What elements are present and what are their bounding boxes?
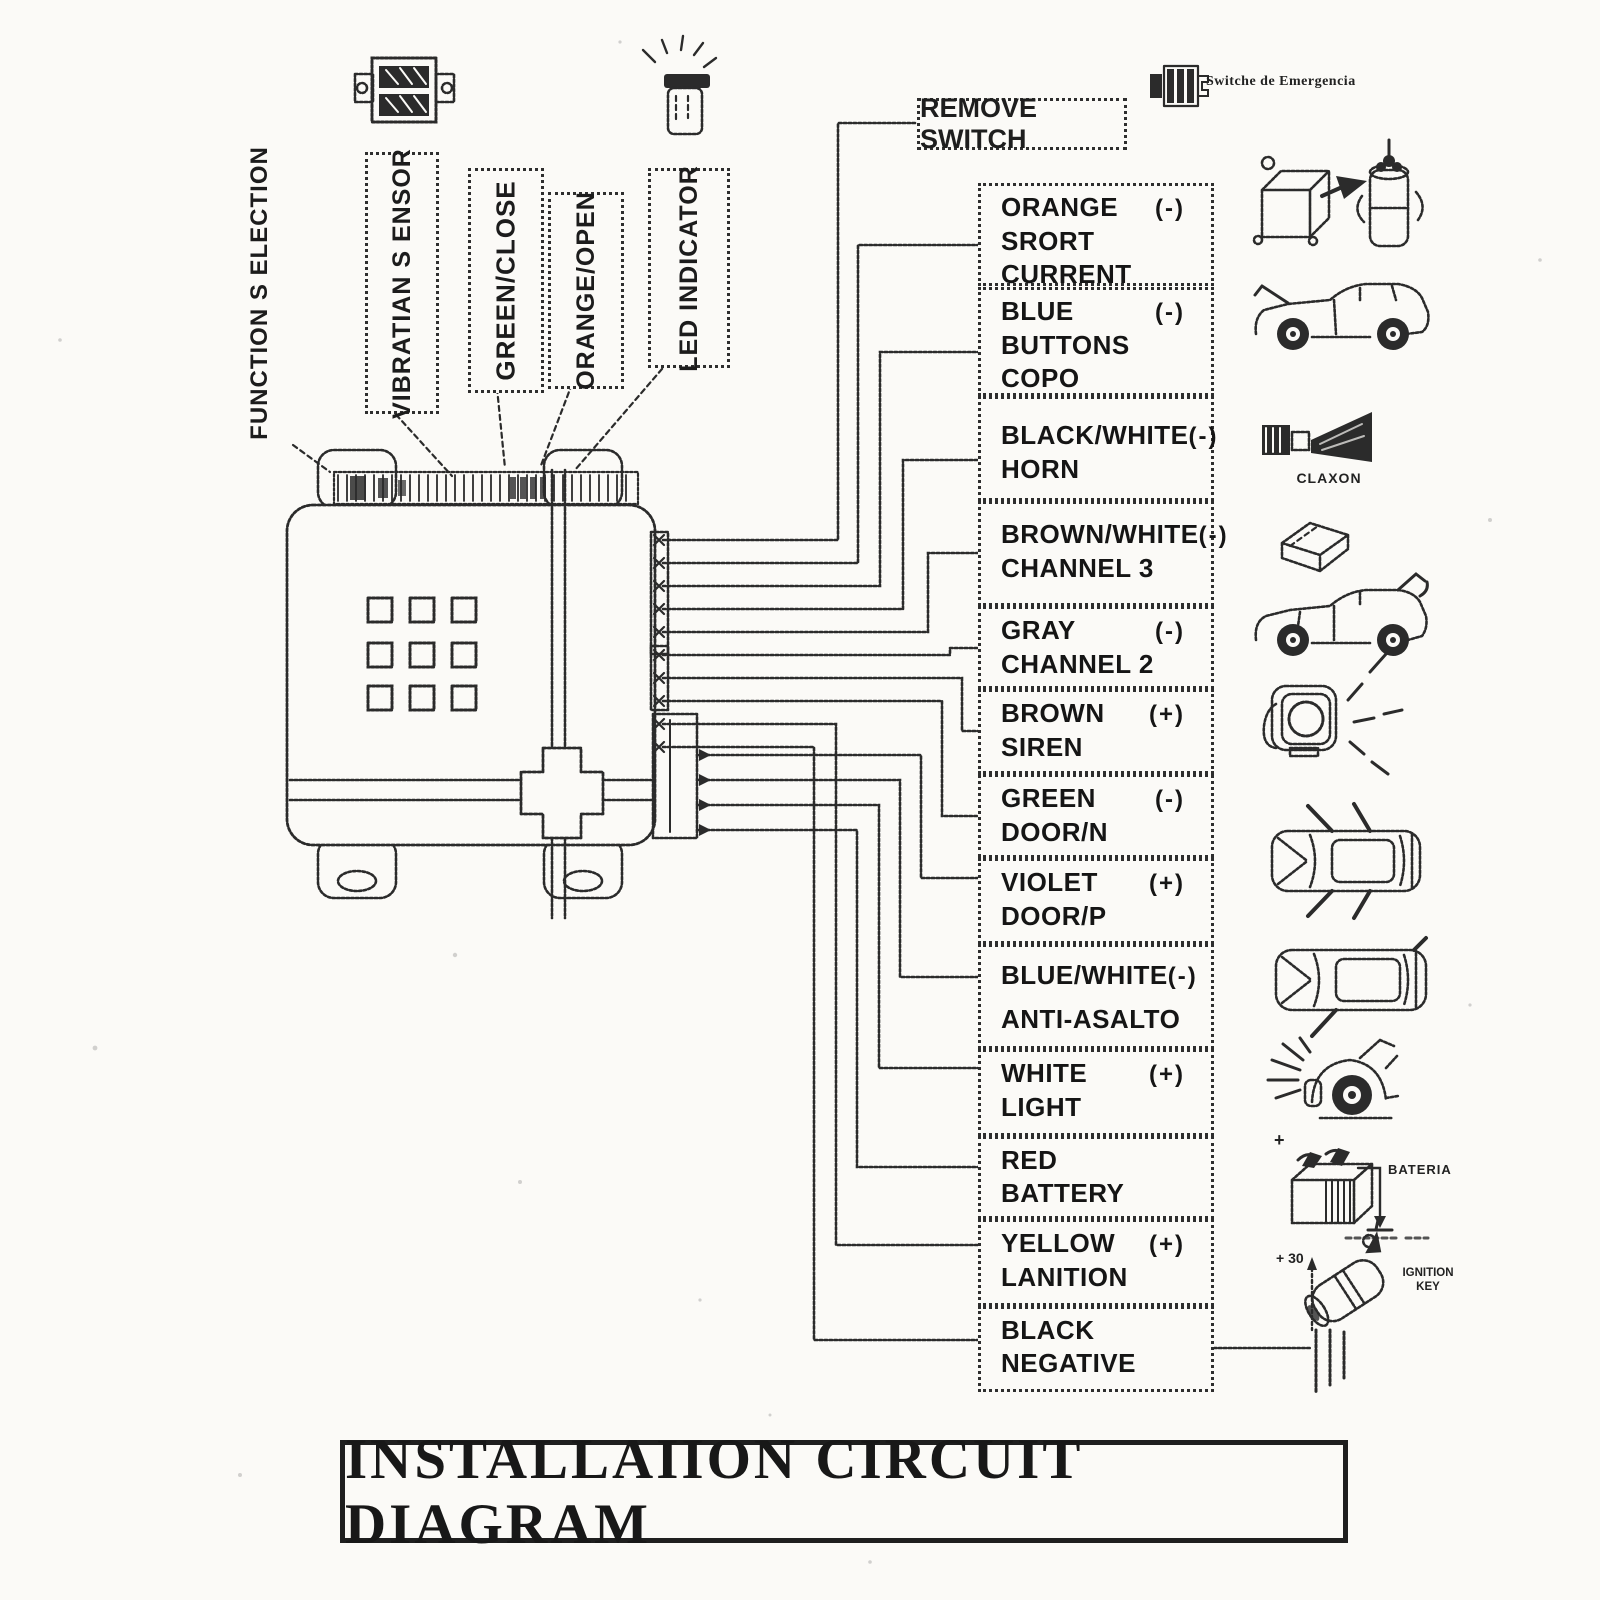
wire-box-orange: ORANGE(-) SRORT CURRENT [978, 183, 1214, 286]
function-selection-label: FUNCTION S ELECTION [230, 170, 290, 415]
module-icon [1282, 523, 1348, 571]
wire-box-blue: BLUE(-) BUTTONS COPO [978, 287, 1214, 396]
relay-actuator-icon [1254, 140, 1423, 246]
ignition-key-label: IGNITION KEY [1392, 1266, 1464, 1294]
vibration-sensor-icon [355, 58, 454, 122]
top-connector-strip [334, 472, 638, 504]
wire-box-red: RED BATTERY [978, 1136, 1214, 1219]
mount-tab-bottom-left [318, 838, 396, 898]
wire-box-yellow: YELLOW(+) LANITION [978, 1219, 1214, 1306]
control-unit [287, 450, 711, 918]
car-open-trunk-icon [1256, 574, 1428, 656]
wire-box-violet: VIOLET(+) DOOR/P [978, 858, 1214, 944]
mount-hole-left [338, 871, 376, 891]
car-front-flash-icon [1268, 1038, 1398, 1118]
installation-circuit-diagram: FUNCTION S ELECTION VIBRATIAN S ENSOR GR… [0, 0, 1600, 1600]
led-indicator-label-box: LED INDICATOR [648, 168, 730, 368]
mount-tab-top-right [544, 450, 622, 508]
car-top-one-door-icon [1276, 938, 1426, 1036]
wire-box-brown-white: BROWN/WHITE(-) CHANNEL 3 [978, 501, 1214, 606]
emergency-switch-label: Switche de Emergencia [1206, 74, 1356, 90]
ignition-plus30-label: + 30 [1276, 1250, 1304, 1266]
page-title: INSTALLAIION CIRCUIT DIAGRAM [345, 1427, 1343, 1557]
wire-box-black: BLACK NEGATIVE [978, 1306, 1214, 1392]
wire-box-brown: BROWN(+) SIREN [978, 689, 1214, 774]
car-top-doors-open-icon [1272, 804, 1420, 918]
wire-box-black-white: BLACK/WHITE(-) HORN [978, 396, 1214, 501]
mount-tab-bottom-right [544, 838, 622, 898]
claxon-label: CLAXON [1284, 470, 1374, 486]
title-box: INSTALLAIION CIRCUIT DIAGRAM [340, 1440, 1348, 1543]
vibration-sensor-label-box: VIBRATIAN S ENSOR [365, 152, 439, 414]
wire-box-green: GREEN(-) DOOR/N [978, 774, 1214, 858]
wire-box-gray: GRAY(-) CHANNEL 2 [978, 606, 1214, 689]
emergency-switch-icon [1150, 66, 1208, 106]
mount-hole-right [564, 871, 602, 891]
horn-claxon-icon [1262, 412, 1372, 462]
green-close-label-box: GREEN/CLOSE [468, 168, 544, 393]
led-bulb-icon [643, 36, 716, 134]
wire-box-white: WHITE(+) LIGHT [978, 1049, 1214, 1136]
car-open-hood-icon [1255, 284, 1428, 350]
battery-plus-label: + [1274, 1130, 1285, 1151]
wire-box-blue-white: BLUE/WHITE(-) ANTI-ASALTO [978, 944, 1214, 1049]
remove-switch-box: REMOVE SWITCH [917, 98, 1127, 150]
ground-symbol [1316, 1330, 1344, 1392]
pin-connectors [651, 532, 711, 838]
siren-icon [1264, 654, 1402, 774]
orange-open-label-box: ORANGE/OPEN [548, 192, 624, 389]
bateria-label: BATERIA [1388, 1162, 1452, 1177]
